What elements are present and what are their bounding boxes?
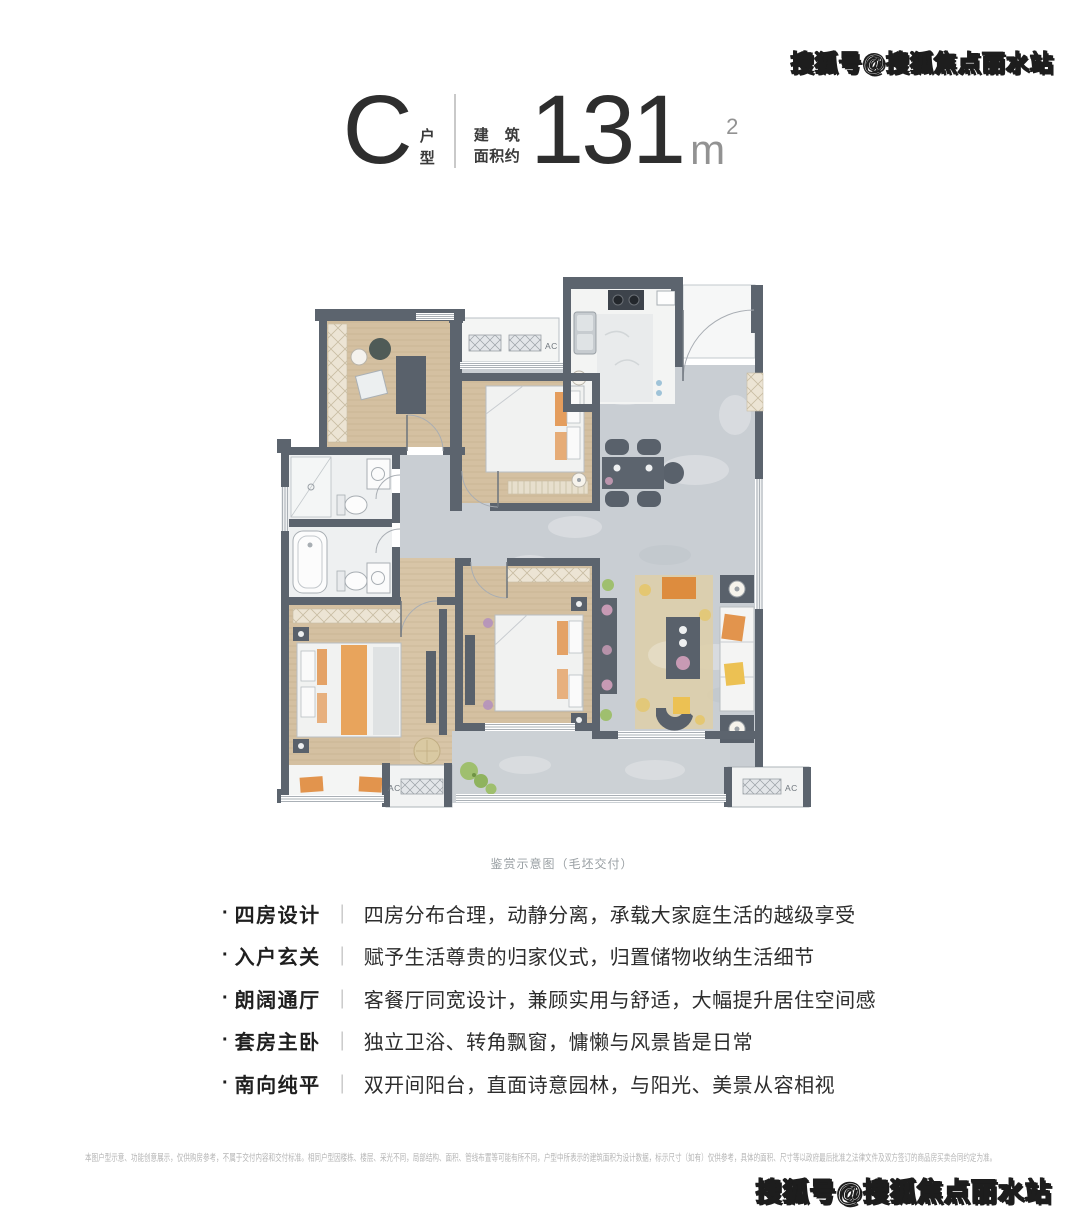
- plan-caption: 鉴赏示意图（毛坯交付）: [490, 855, 633, 872]
- area-value: 131: [530, 92, 683, 168]
- area-unit-base: m: [690, 126, 725, 173]
- watermark-top-right: 搜狐号@搜狐焦点丽水站: [791, 44, 1054, 78]
- ac-label-bottom-right: AC: [785, 783, 798, 793]
- feature-row: · 四房设计 ｜ 四房分布合理，动静分离，承载大家庭生活的越级享受: [222, 903, 876, 923]
- floor-plan: AC AC AC: [275, 265, 815, 825]
- feature-label: 南向纯平: [235, 1069, 321, 1098]
- header-divider: [454, 94, 456, 168]
- bullet-dot: ·: [222, 1029, 229, 1052]
- ac-label-bottom-left: AC: [388, 783, 401, 793]
- unit-type-label: 户 型: [420, 129, 436, 166]
- area-unit-sup: 2: [726, 114, 738, 139]
- bullet-dot: ·: [222, 944, 229, 967]
- feature-text: 双开间阳台，直面诗意园林，与阳光、美景从容相视: [364, 1069, 836, 1098]
- page: { "header": { "type_letter": "C", "type_…: [0, 0, 1080, 1211]
- area-unit: m2: [690, 133, 737, 167]
- area-prefix-line2: 面积约: [474, 149, 521, 164]
- watermark-bottom-right: 搜狐号@搜狐焦点丽水站: [756, 1172, 1052, 1209]
- feature-label: 套房主卧: [235, 1026, 321, 1055]
- unit-type-letter: C: [343, 92, 410, 168]
- feature-separator: ｜: [333, 942, 352, 969]
- bullet-dot: ·: [222, 987, 229, 1010]
- feature-row: · 入户玄关 ｜ 赋予生活尊贵的归家仪式，归置储物收纳生活细节: [222, 946, 876, 966]
- floor-plan-drawing: AC AC AC: [275, 265, 815, 825]
- feature-row: · 南向纯平 ｜ 双开间阳台，直面诗意园林，与阳光、美景从容相视: [222, 1073, 876, 1093]
- header: C 户 型 建 筑 面积约 131 m2: [0, 92, 1080, 168]
- feature-text: 四房分布合理，动静分离，承载大家庭生活的越级享受: [364, 899, 856, 928]
- bullet-dot: ·: [222, 1072, 229, 1095]
- area-prefix: 建 筑 面积约: [474, 128, 521, 164]
- bullet-dot: ·: [222, 902, 229, 925]
- area-prefix-line1: 建 筑: [474, 128, 521, 143]
- feature-row: · 套房主卧 ｜ 独立卫浴、转角飘窗，慵懒与风景皆是日常: [222, 1031, 876, 1051]
- unit-type-label-bottom: 型: [420, 151, 436, 166]
- feature-text: 独立卫浴、转角飘窗，慵懒与风景皆是日常: [364, 1026, 754, 1055]
- feature-label: 朗阔通厅: [235, 984, 321, 1013]
- ac-label-top: AC: [545, 341, 558, 351]
- feature-separator: ｜: [333, 900, 352, 927]
- feature-separator: ｜: [333, 1070, 352, 1097]
- feature-text: 赋予生活尊贵的归家仪式，归置储物收纳生活细节: [364, 941, 815, 970]
- feature-row: · 朗阔通厅 ｜ 客餐厅同宽设计，兼顾实用与舒适，大幅提升居住空间感: [222, 988, 876, 1008]
- disclaimer-text: 本图户型示意、功能创意展示，仅供购房参考，不属于交付内容和交付标准。相同户型因楼…: [85, 1150, 1010, 1164]
- unit-type-label-top: 户: [420, 129, 436, 144]
- feature-separator: ｜: [333, 985, 352, 1012]
- feature-list: · 四房设计 ｜ 四房分布合理，动静分离，承载大家庭生活的越级享受 · 入户玄关…: [222, 903, 876, 1116]
- entry-niche: [747, 373, 763, 411]
- feature-label: 入户玄关: [235, 941, 321, 970]
- feature-label: 四房设计: [235, 899, 321, 928]
- feature-text: 客餐厅同宽设计，兼顾实用与舒适，大幅提升居住空间感: [364, 984, 877, 1013]
- feature-separator: ｜: [333, 1027, 352, 1054]
